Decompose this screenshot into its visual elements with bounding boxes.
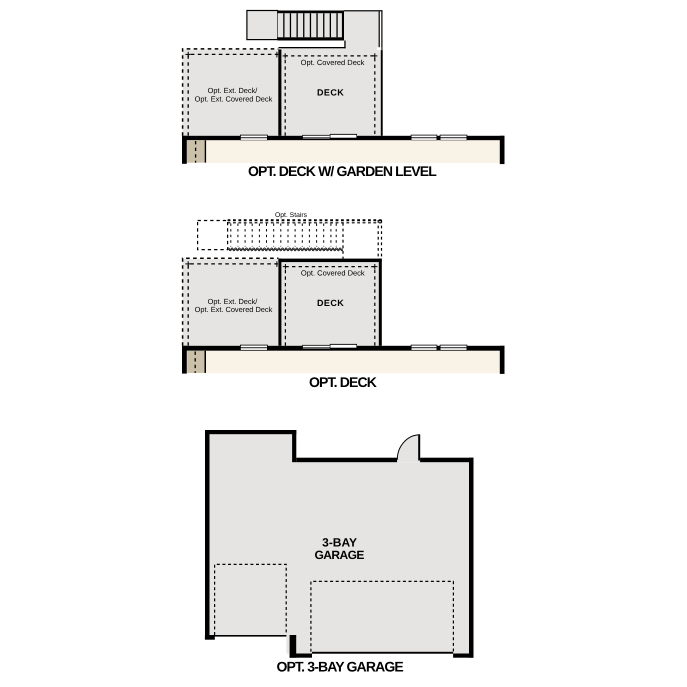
svg-text:Opt. Covered Deck: Opt. Covered Deck (301, 58, 365, 67)
svg-text:DECK: DECK (317, 88, 344, 98)
svg-text:Opt. Ext. Covered Deck: Opt. Ext. Covered Deck (195, 94, 273, 103)
svg-text:Opt. Stairs: Opt. Stairs (275, 212, 308, 219)
svg-text:Opt. Covered Deck: Opt. Covered Deck (301, 268, 365, 277)
svg-text:OPT. 3-BAY GARAGE: OPT. 3-BAY GARAGE (277, 659, 404, 675)
svg-text:Opt. Ext. Covered Deck: Opt. Ext. Covered Deck (195, 305, 273, 314)
svg-text:OPT. DECK: OPT. DECK (309, 374, 377, 390)
svg-text:GARAGE: GARAGE (315, 548, 365, 562)
svg-text:DECK: DECK (317, 298, 344, 308)
svg-text:OPT. DECK W/ GARDEN LEVEL: OPT. DECK W/ GARDEN LEVEL (248, 163, 437, 179)
